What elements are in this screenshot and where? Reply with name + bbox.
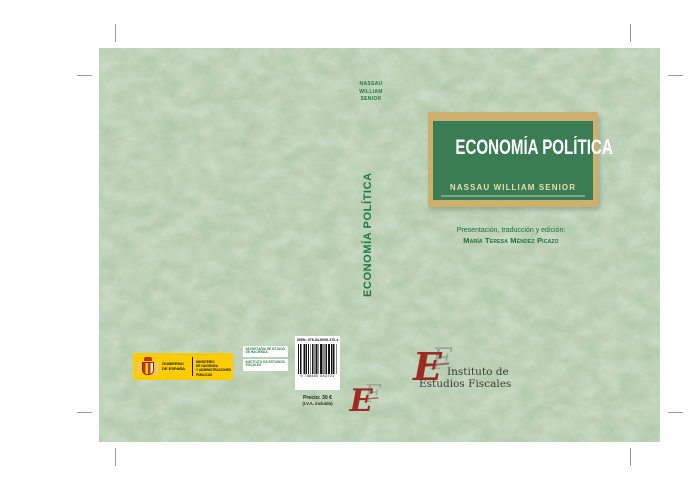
- spine-title-vertical: ECONOMÍA POLÍTICA: [362, 181, 382, 297]
- price-block: Precio: 30 € (I.V.A. incluido): [293, 395, 342, 406]
- publisher-name-line1: Instituto de: [447, 366, 509, 378]
- credits-editor-name: María Teresa Méndez Picazo: [429, 236, 593, 245]
- spine-author-line3: SENIOR: [341, 96, 401, 104]
- isbn-label: ISBN: 978-84-8008-370-4: [297, 338, 338, 342]
- government-logo-divider: [192, 357, 193, 376]
- book-author: NASSAU WILLIAM SENIOR: [433, 183, 593, 192]
- publisher-ef-monogram-icon: F E: [348, 383, 383, 417]
- crown: [144, 357, 152, 361]
- barcode-icon: [298, 344, 337, 374]
- government-logo: GOBIERNO DE ESPAÑA MINISTERIO DE HACIEND…: [133, 353, 233, 380]
- front-title-plate: ECONOMÍA POLÍTICA NASSAU WILLIAM SENIOR: [428, 112, 598, 207]
- credits-heading: Presentación, traducción y edición:: [429, 227, 593, 234]
- shield: [142, 362, 154, 375]
- spine-author-line2: WILLIAM: [341, 89, 401, 97]
- monogram-letter-e: E: [350, 382, 373, 418]
- credits-block: Presentación, traducción y edición: Marí…: [429, 227, 593, 245]
- spine-author-name: NASSAU WILLIAM SENIOR: [341, 81, 401, 104]
- spine-author-line1: NASSAU: [341, 81, 401, 89]
- department-strip-2: INSTITUTO DE ESTUDIOS FISCALES: [243, 359, 288, 371]
- ministerio-label: MINISTERIO DE HACIENDA Y ADMINISTRACIONE…: [196, 360, 232, 377]
- department-strip-1: SECRETARÍA DE ESTADO DE HACIENDA: [243, 346, 288, 357]
- crop-mark-top-right-vertical: [630, 24, 631, 42]
- book-title: ECONOMÍA POLÍTICA: [455, 136, 570, 160]
- pillar-left: [138, 362, 140, 374]
- pillar-right: [156, 362, 158, 374]
- publisher-name-line2: Estudios Fiscales: [419, 378, 511, 390]
- vat-note: (I.V.A. incluido): [293, 401, 342, 406]
- crop-mark-bottom-right-horizontal: [668, 412, 683, 413]
- crop-mark-bottom-left-horizontal: [77, 412, 92, 413]
- author-underline-rule: [441, 195, 585, 197]
- crop-mark-top-left-vertical: [115, 24, 116, 42]
- gobierno-de-espana-label: GOBIERNO DE ESPAÑA: [162, 361, 185, 371]
- front-title-plate-inner: ECONOMÍA POLÍTICA NASSAU WILLIAM SENIOR: [433, 121, 593, 200]
- book-cover-spread: NASSAU WILLIAM SENIOR ECONOMÍA POLÍTICA …: [99, 48, 660, 442]
- print-proof-sheet: NASSAU WILLIAM SENIOR ECONOMÍA POLÍTICA …: [0, 0, 700, 490]
- crop-mark-bottom-left-vertical: [115, 448, 116, 466]
- barcode-digits: 9 788480 083704: [297, 374, 338, 378]
- crop-mark-top-left-horizontal: [77, 75, 92, 76]
- barcode-block: ISBN: 978-84-8008-370-4 9 788480 083704: [295, 336, 340, 390]
- crop-mark-top-right-horizontal: [668, 75, 683, 76]
- spain-coat-of-arms-icon: [137, 356, 159, 377]
- publisher-logo: F E Instituto de Estudios Fiscales: [411, 345, 531, 397]
- crop-mark-bottom-right-vertical: [630, 448, 631, 466]
